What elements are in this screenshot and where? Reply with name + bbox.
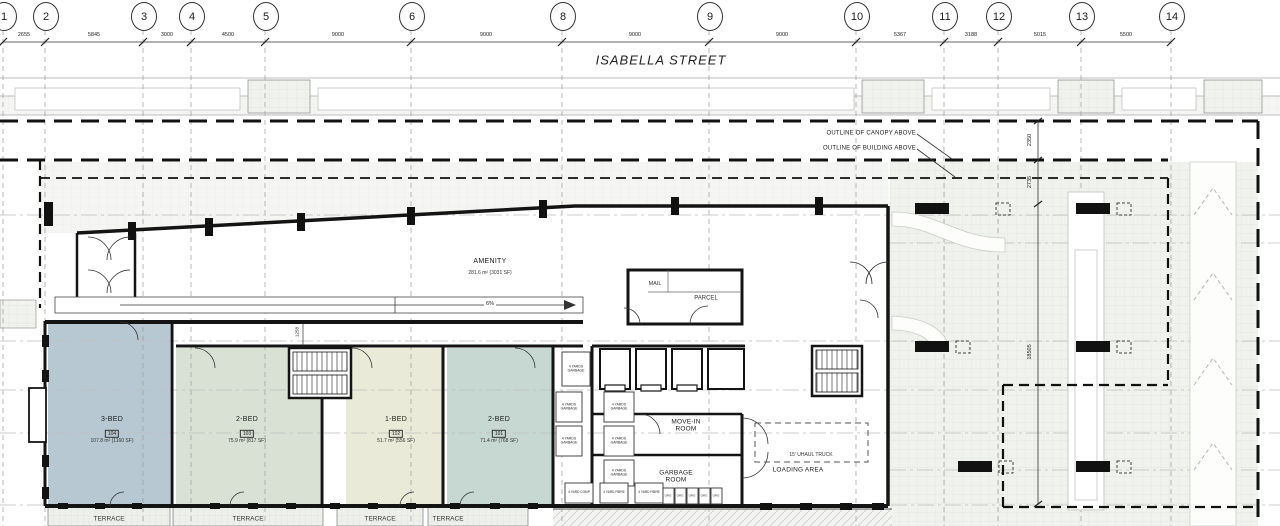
bin-small-label: ORG bbox=[689, 494, 696, 497]
unit-104-area: 107.8 m² (1160 SF) bbox=[91, 439, 134, 445]
grid-bubble-13: 13 bbox=[1069, 2, 1095, 31]
bin-label: 4 YARDS GARBAGE bbox=[606, 469, 632, 476]
grid-dim: 9000 bbox=[776, 32, 788, 38]
loading-area-label: LOADING AREA bbox=[773, 466, 824, 473]
unit-101-idbox: 101 bbox=[492, 430, 506, 438]
grid-bubble-14: 14 bbox=[1159, 2, 1185, 31]
uhaul-truck-label: 15' UHAUL TRUCK bbox=[789, 453, 832, 459]
bin-label: 4 YARDS GARBAGE bbox=[556, 403, 582, 410]
amenity-area: 281.6 m² (3031 SF) bbox=[468, 271, 511, 277]
move-in-room-label: MOVE-IN ROOM bbox=[665, 419, 707, 434]
bin-label: 4 YARDS GARBAGE bbox=[606, 437, 632, 444]
grid-dim: 9000 bbox=[332, 32, 344, 38]
plan-linework bbox=[0, 0, 1280, 526]
grid-dim: 3188 bbox=[965, 32, 977, 38]
bin-small-label: ORG bbox=[713, 494, 720, 497]
canopy-callout: OUTLINE OF CANOPY ABOVE bbox=[826, 131, 916, 138]
amenity-label: AMENITY bbox=[473, 258, 506, 266]
bin-label: 4 YARDS GARBAGE bbox=[563, 365, 589, 372]
grid-bubble-11: 11 bbox=[932, 2, 958, 31]
bin-fibre-label: 4 YARD FIBRE bbox=[637, 491, 661, 495]
terrace-label: TERRACE bbox=[432, 515, 463, 522]
grid-bubble-2: 2 bbox=[33, 2, 59, 31]
grid-bubble-8: 8 bbox=[550, 2, 576, 31]
grid-dim: 2655 bbox=[18, 32, 30, 38]
grid-bubble-12: 12 bbox=[986, 2, 1012, 31]
grid-dim: 4500 bbox=[222, 32, 234, 38]
unit-102-idbox: 102 bbox=[389, 430, 403, 438]
unit-103-idbox: 103 bbox=[240, 430, 254, 438]
bin-small-label: ORG bbox=[701, 494, 708, 497]
bin-fibre-label: 4 YARD FIBRE bbox=[602, 491, 626, 495]
ramp-layer bbox=[55, 297, 583, 313]
grid-bubble-4: 4 bbox=[179, 2, 205, 31]
grid-bubble-9: 9 bbox=[697, 2, 723, 31]
vdim-2350: 2350 bbox=[1027, 134, 1033, 146]
corridor-dim: 1258 bbox=[294, 327, 299, 337]
vdim-2735: 2735 bbox=[1027, 176, 1033, 188]
bin-comp-label: 4 YARD COMP bbox=[567, 491, 591, 495]
bin-label: 4 YARDS GARBAGE bbox=[606, 403, 632, 410]
terrace-label: TERRACE bbox=[93, 515, 124, 522]
grid-dim: 9000 bbox=[629, 32, 641, 38]
garbage-room-label: GARBAGE ROOM bbox=[655, 470, 697, 485]
grid-dim: 5015 bbox=[1034, 32, 1046, 38]
grid-bubble-10: 10 bbox=[844, 2, 870, 31]
terrace-label: TERRACE bbox=[364, 515, 395, 522]
unit-104-idbox: 104 bbox=[105, 430, 119, 438]
mail-label: MAIL bbox=[649, 281, 662, 287]
street-name: ISABELLA STREET bbox=[596, 54, 727, 69]
grid-dim: 3000 bbox=[161, 32, 173, 38]
grid-bubble-3: 3 bbox=[131, 2, 157, 31]
floor-plan: ISABELLA STREET 1 2 3 4 5 6 8 9 10 11 12… bbox=[0, 0, 1280, 526]
bin-label: 4 YARDS GARBAGE bbox=[556, 437, 582, 444]
grid-dim: 5500 bbox=[1120, 32, 1132, 38]
vdim-18505: 18505 bbox=[1027, 344, 1033, 359]
grid-bubble-5: 5 bbox=[253, 2, 279, 31]
parcel-label: PARCEL bbox=[694, 296, 718, 303]
terrace-label: TERRACE bbox=[232, 515, 263, 522]
bin-small-label: ORG bbox=[665, 494, 672, 497]
grid-dim: 5845 bbox=[88, 32, 100, 38]
unit-103-area: 75.9 m² (817 SF) bbox=[228, 439, 266, 445]
grid-dim: 5367 bbox=[894, 32, 906, 38]
building-callout: OUTLINE OF BUILDING ABOVE bbox=[823, 146, 916, 153]
ramp-slope: 6% bbox=[484, 301, 496, 307]
bin-small-label: ORG bbox=[677, 494, 684, 497]
unit-101-area: 71.4 m² (768 SF) bbox=[480, 439, 518, 445]
grid-bubble-6: 6 bbox=[399, 2, 425, 31]
unit-102-area: 51.7 m² (556 SF) bbox=[377, 439, 415, 445]
grid-dim: 9000 bbox=[480, 32, 492, 38]
